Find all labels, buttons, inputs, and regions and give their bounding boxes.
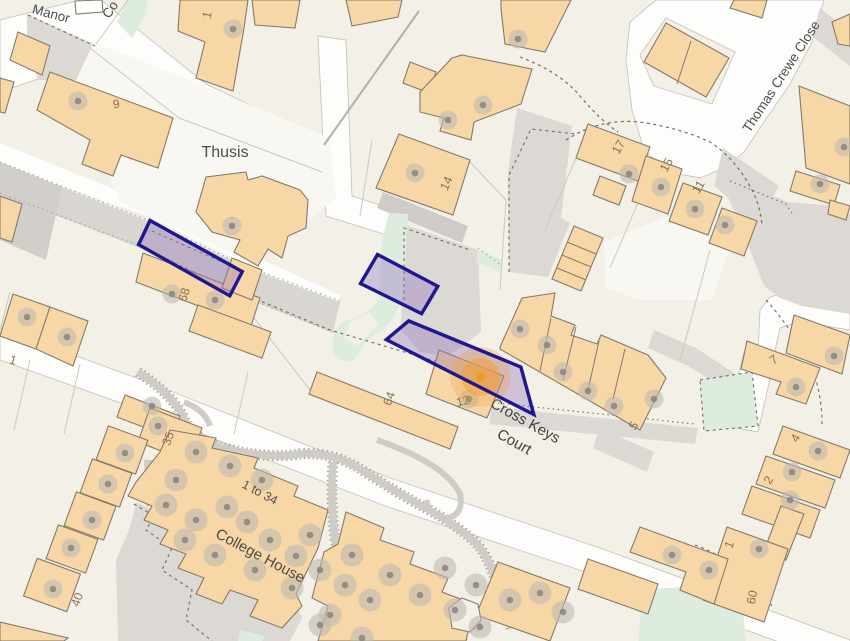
svg-text:Thusis: Thusis [201,144,248,161]
